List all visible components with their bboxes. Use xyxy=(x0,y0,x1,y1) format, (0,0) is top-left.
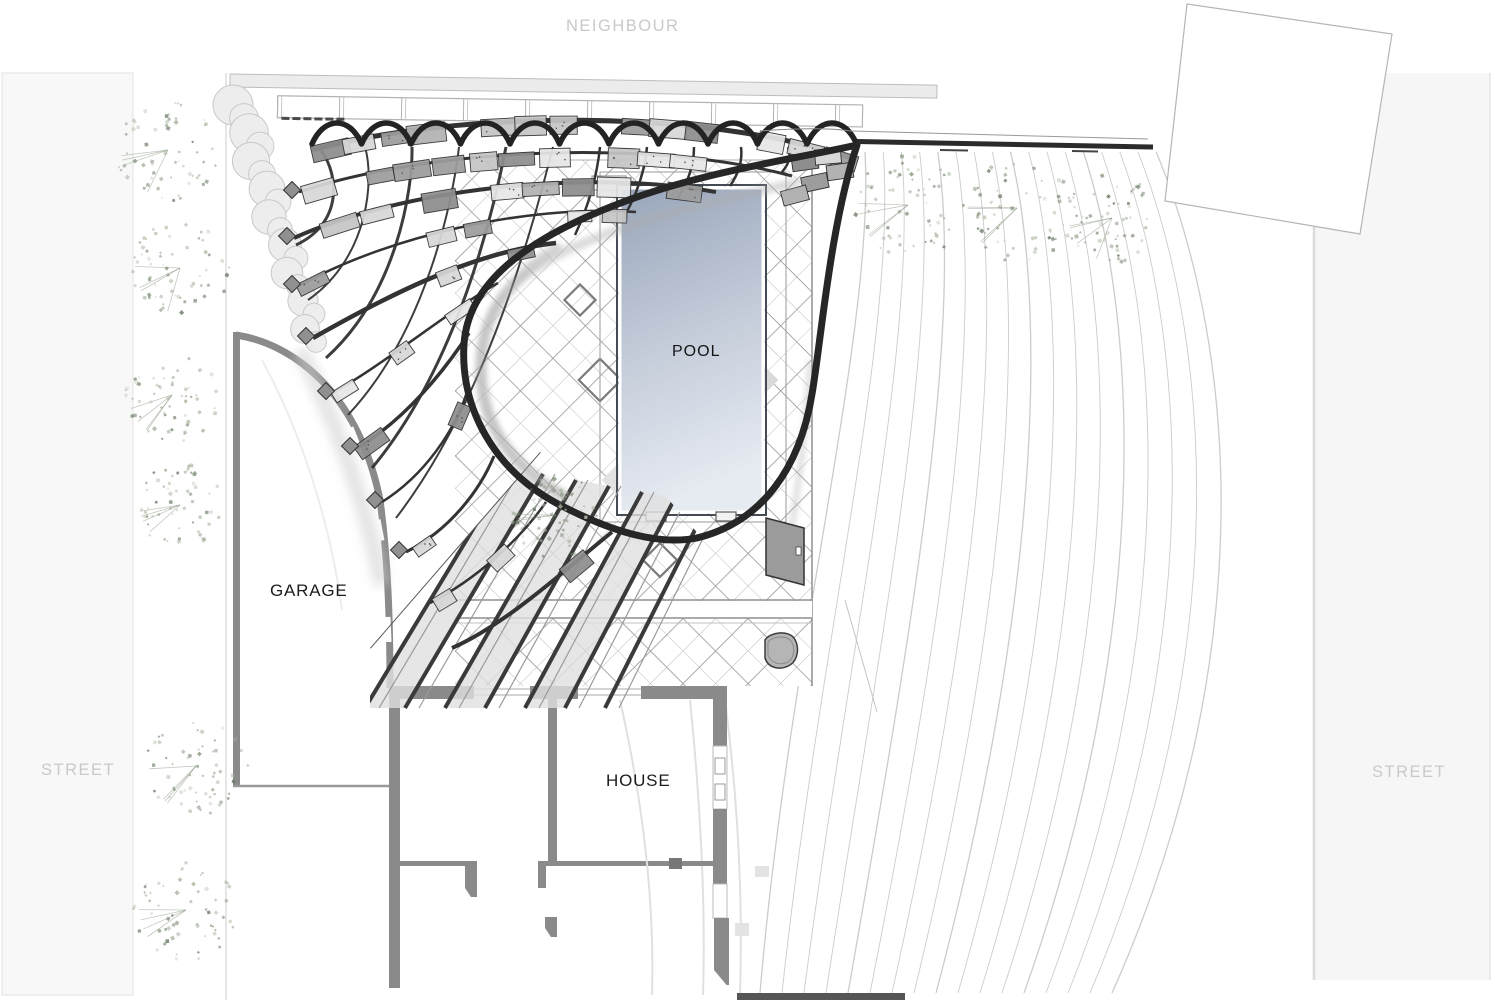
tree xyxy=(131,223,230,315)
tree xyxy=(1065,173,1148,264)
garage-plan xyxy=(233,332,390,786)
site-plan-drawing xyxy=(0,0,1495,1000)
site-plan: NEIGHBOUR STREET STREET POOL GARAGE HOUS… xyxy=(0,0,1495,1000)
tree xyxy=(132,861,234,961)
tree xyxy=(124,357,219,442)
tree xyxy=(853,155,951,255)
house-plan xyxy=(389,686,905,1000)
neighbour-building xyxy=(1165,4,1392,234)
tree xyxy=(140,463,221,543)
